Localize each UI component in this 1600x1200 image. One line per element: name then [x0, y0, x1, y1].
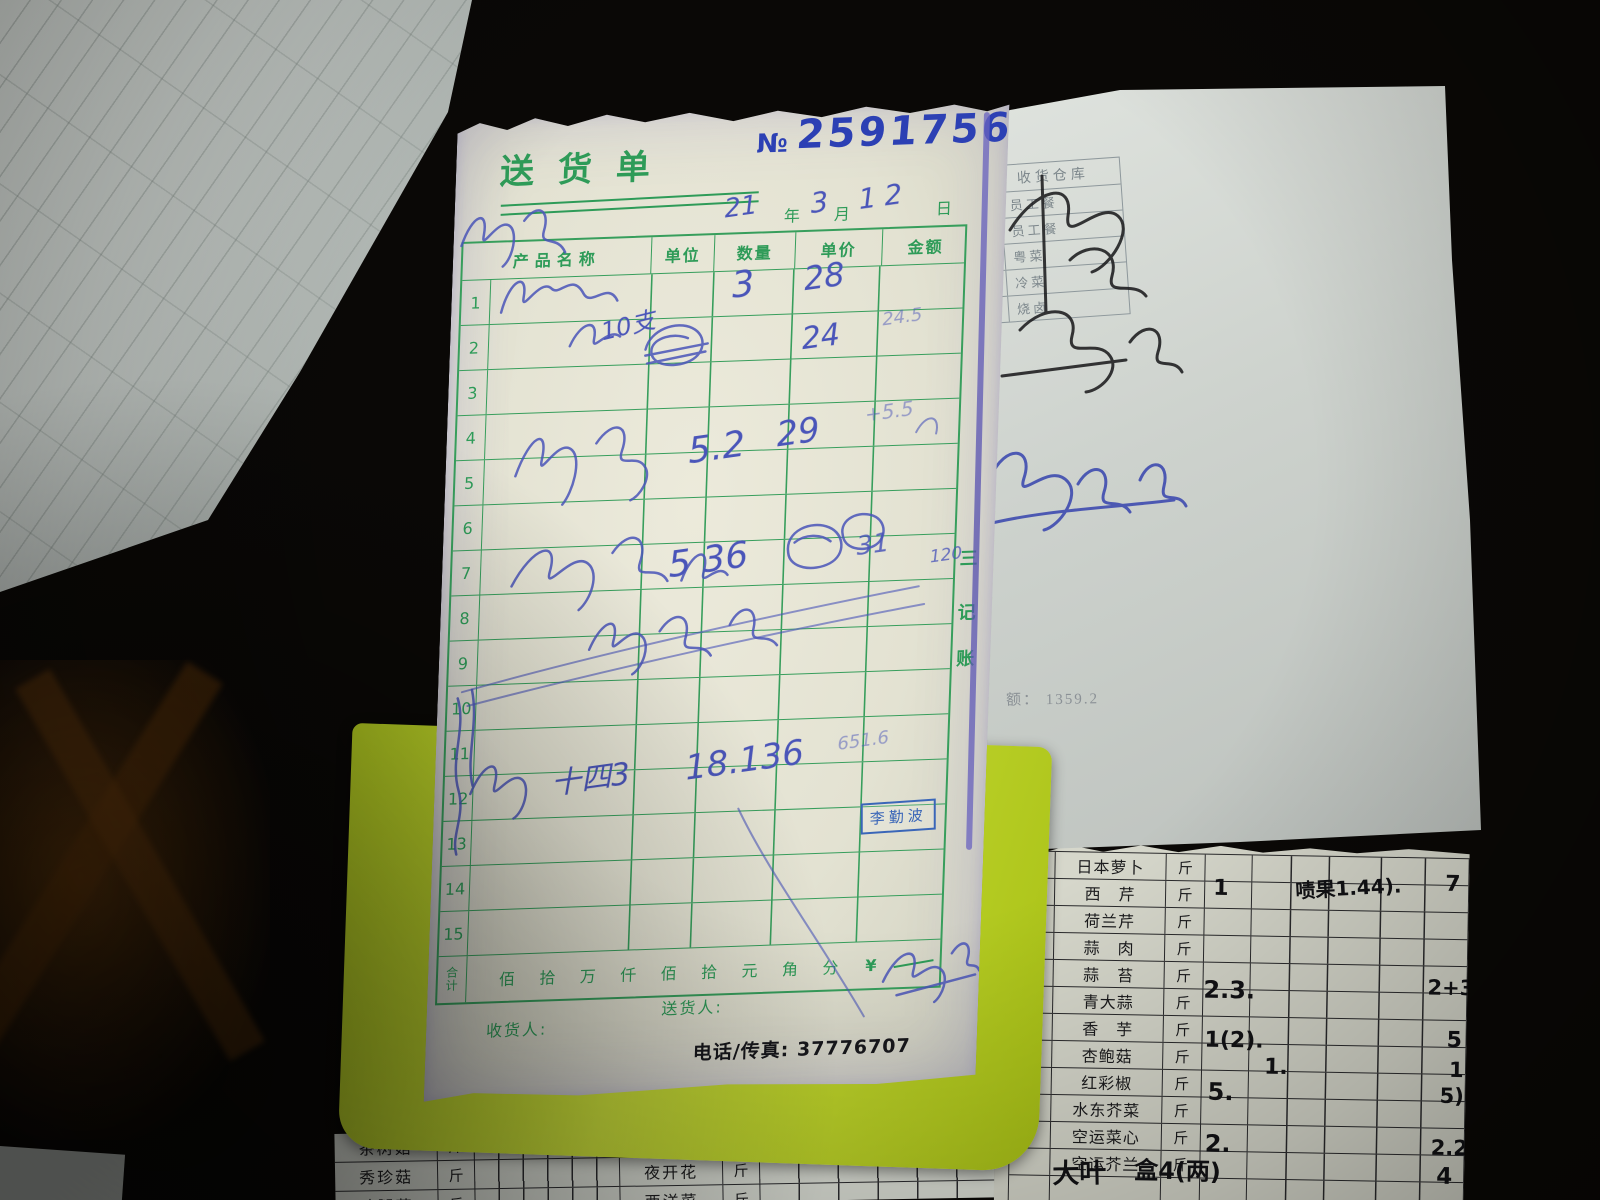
- qty-cell: [1204, 909, 1251, 936]
- product-name: 秀珍菇: [335, 1161, 438, 1191]
- product-name: 红彩椒: [1052, 1068, 1163, 1096]
- handwritten-qty: 5.: [1207, 1078, 1233, 1106]
- unit-label: 斤: [1165, 935, 1204, 962]
- product-name: 荷兰芹: [1054, 906, 1165, 934]
- handwritten-qty: 1: [1213, 876, 1229, 901]
- handwritten-qty: 2.3.: [1203, 976, 1255, 1005]
- handwritten-right-margin: 5): [1439, 1084, 1464, 1108]
- receipt-summary-sheet: 收货仓库 员工餐 员工餐 粤菜 冷菜 烧卤 额： 1359.2: [950, 80, 1490, 860]
- empty-cells: [1251, 909, 1468, 939]
- unit-label: 斤: [1163, 1070, 1202, 1097]
- qty-cell: [1205, 882, 1252, 909]
- product-name: 青大蒜: [1053, 987, 1164, 1015]
- handwritten-right-margin: 4: [1436, 1164, 1452, 1190]
- product-name: 夜开花: [620, 1156, 723, 1186]
- unit-label: 斤: [1162, 1124, 1201, 1151]
- empty-cells: [1248, 1098, 1465, 1128]
- wood-chair-left: [0, 620, 300, 1200]
- handwritten-qty: 1(2).: [1204, 1028, 1264, 1054]
- handwritten-qty: 1.: [1264, 1055, 1288, 1080]
- product-name: 西 芹: [1055, 879, 1166, 907]
- empty-cells: [1247, 1179, 1464, 1200]
- handwritten-right-margin: 1: [1449, 1058, 1464, 1082]
- product-name: 西洋菜: [620, 1185, 723, 1200]
- unit-label: 斤: [438, 1189, 475, 1200]
- ruled-paper-top-left: [0, 0, 500, 620]
- unit-label: 斤: [1165, 908, 1204, 935]
- handwriting-scribbles: [424, 99, 1010, 1102]
- empty-cells: [475, 1187, 620, 1200]
- signature-scribbles: [950, 80, 1490, 860]
- unit-label: 斤: [438, 1160, 475, 1189]
- vegetable-order-sheet: 日本萝卜 斤 西 芹 斤 荷兰芹 斤 蒜 肉: [994, 840, 1470, 1200]
- handwritten-note: 啧果1.44).: [1295, 869, 1402, 904]
- unit-label: 斤: [1166, 854, 1205, 881]
- empty-cells: [1251, 936, 1468, 966]
- product-name: 杏鲍菇: [1052, 1041, 1163, 1069]
- product-name: 水东芥菜: [1051, 1095, 1162, 1123]
- delivery-note: 送货单 № 2591756 21 年 3 月 12 日 产品名称 单位 数量 单…: [424, 99, 1010, 1102]
- product-name: 鸡腿菇: [335, 1190, 438, 1200]
- handwritten-right-margin: 5: [1446, 1028, 1462, 1053]
- ruled-lines: [0, 0, 500, 620]
- handwritten-right-margin: 2+3: [1427, 975, 1474, 1000]
- unit-label: 斤: [1164, 1016, 1203, 1043]
- unit-label: 斤: [723, 1185, 760, 1200]
- empty-cells: [1249, 1017, 1466, 1047]
- unit-label: 斤: [1166, 881, 1205, 908]
- product-name: 蒜 苔: [1053, 960, 1164, 988]
- qty-cell: [1204, 936, 1251, 963]
- product-name: 蒜 肉: [1054, 933, 1165, 961]
- empty-cells: [475, 1158, 620, 1189]
- unit-label: 斤: [1164, 989, 1203, 1016]
- empty-cells: [760, 1180, 1015, 1200]
- product-name: 香 芋: [1053, 1014, 1164, 1042]
- handwritten-right-margin: 7: [1445, 872, 1461, 897]
- unit-label: 斤: [1163, 1043, 1202, 1070]
- wood-furniture-right: [1498, 270, 1600, 1200]
- unit-label: 斤: [1164, 962, 1203, 989]
- margin-cell: [1009, 1175, 1050, 1200]
- product-name: 空运菜心: [1051, 1122, 1162, 1150]
- paper-corner-bottom-left: [0, 1145, 125, 1200]
- handwritten-qty: 盒4(两): [1134, 1150, 1221, 1187]
- handwritten-product: 大叶: [1052, 1151, 1107, 1191]
- vegetable-grid: 日本萝卜 斤 西 芹 斤 荷兰芹 斤 蒜 肉: [1008, 850, 1470, 1200]
- product-name: 日本萝卜: [1055, 852, 1166, 880]
- unit-label: 斤: [1162, 1097, 1201, 1124]
- photo-of-documents: 茶树菇 斤 黄雪菜 斤 秀珍菇 斤 夜开花 斤 鸡腿菇 斤 西洋菜 斤: [0, 0, 1600, 1200]
- handwritten-right-margin: 2.2: [1430, 1136, 1468, 1161]
